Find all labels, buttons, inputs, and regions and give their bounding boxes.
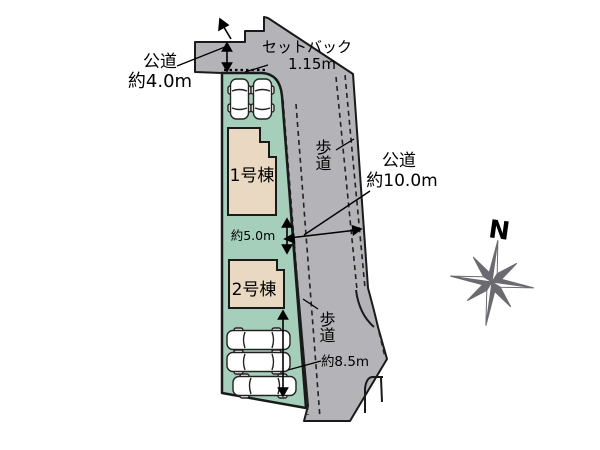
label-road-left-name: 公道	[143, 52, 177, 72]
car-top-1	[228, 79, 251, 119]
car-bottom-3	[233, 374, 296, 398]
label-setback-width: 1.15m	[288, 55, 336, 73]
site-plan: 公道 約4.0m セットバック 1.15m 歩道 公道 約10.0m 約5.0m…	[0, 0, 600, 450]
compass-rose: N	[444, 210, 543, 332]
label-building-2: 2号棟	[232, 280, 277, 300]
car-bottom-2	[227, 350, 290, 374]
compass-star	[444, 235, 539, 332]
label-building-1: 1号棟	[230, 166, 275, 186]
label-setback-name: セットバック	[262, 38, 352, 56]
label-road-left-width: 約4.0m	[128, 71, 192, 92]
label-road-main-name: 公道	[382, 151, 416, 171]
label-parking-depth: 約8.5m	[321, 354, 369, 370]
car-bottom-1	[227, 328, 290, 352]
curb-line-corner	[381, 378, 382, 402]
compass-north-label: N	[487, 214, 512, 246]
label-sidewalk-upper: 歩道	[313, 139, 332, 171]
site-plan-canvas: 公道 約4.0m セットバック 1.15m 歩道 公道 約10.0m 約5.0m…	[0, 0, 600, 450]
label-building-gap: 約5.0m	[231, 228, 276, 243]
label-road-main-width: 約10.0m	[366, 171, 437, 191]
label-sidewalk-lower: 歩道	[317, 311, 336, 343]
car-top-2	[251, 79, 274, 119]
